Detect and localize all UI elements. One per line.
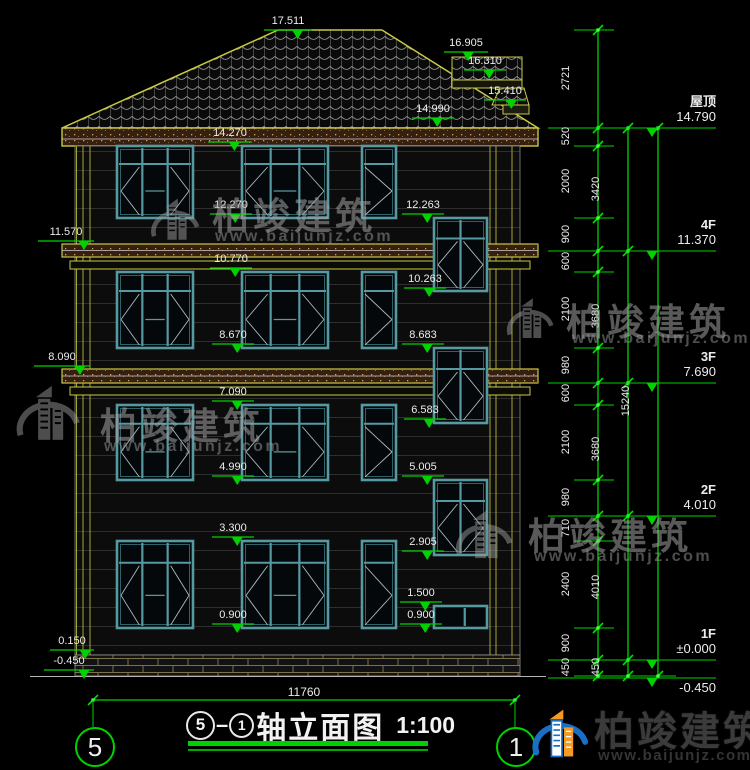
window [242,272,328,348]
dim-dot [626,674,629,677]
title-axis-end-circle: 1 [229,713,254,738]
elevation-triangle-icon [647,128,658,137]
dim-dot [596,626,599,629]
title-dash: – [216,712,228,738]
dim-dot [656,674,659,677]
window-frame [242,146,328,218]
dim-dot [596,216,599,219]
wing-eave [503,105,529,114]
elevation-triangle-icon [647,516,658,525]
window [434,348,487,423]
window [362,541,396,628]
window [242,405,328,480]
window [242,146,328,218]
window [434,218,487,291]
title-underline-thick [188,741,428,746]
dim-dot [596,478,599,481]
elevation-triangle-icon [647,251,658,260]
title-underline-thin [188,749,428,751]
dim-dot [596,403,599,406]
window [117,405,193,480]
window [362,405,396,480]
wing-roof-ridge [452,57,522,80]
dim-dot [596,28,599,31]
window-frame [362,405,396,480]
window-frame [117,541,193,628]
drawing-canvas [0,0,750,770]
window-frame [242,272,328,348]
plinth-brick [75,655,520,676]
cad-elevation-drawing: 17.51116.90516.31015.41014.99014.27012.2… [0,0,750,770]
window-frame [117,272,193,348]
elevation-triangle-icon [647,383,658,392]
window-frame [242,541,328,628]
dim-dot [596,539,599,542]
window-frame [362,272,396,348]
window [117,272,193,348]
dim-dot [596,346,599,349]
axis-bubble-left: 5 [75,727,115,767]
company-logo-icon [527,698,593,770]
window [362,146,396,218]
window-frame [362,541,396,628]
wing-roof-fascia [452,80,522,88]
dim-dot [596,144,599,147]
window [434,606,487,628]
window [434,480,487,555]
window-frame [362,146,396,218]
title-scale: 1:100 [396,712,455,739]
window [362,272,396,348]
window-frame [117,405,193,480]
title-axis-start-circle: 5 [186,711,215,740]
elevation-triangle-icon [647,660,658,669]
window [117,146,193,218]
dim-dot [596,674,599,677]
elevation-triangle-icon [647,678,658,687]
window-frame [242,405,328,480]
window [242,541,328,628]
company-logo-url: www.baijunjz.com [598,747,750,764]
dim-dot [596,270,599,273]
window-frame [434,606,487,628]
window [117,541,193,628]
